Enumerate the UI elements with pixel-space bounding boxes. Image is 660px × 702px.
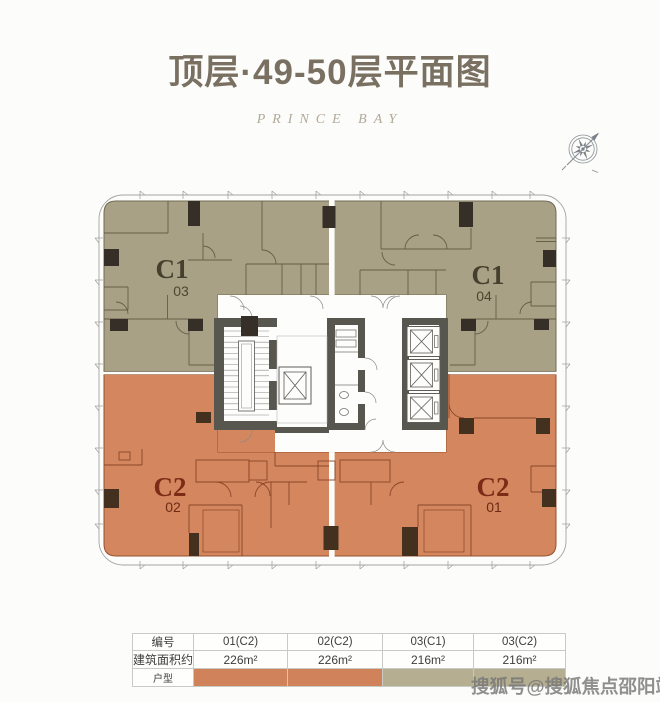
svg-text:01: 01: [486, 499, 502, 515]
svg-text:02: 02: [165, 499, 181, 515]
svg-text:C2: C2: [154, 472, 187, 502]
svg-text:04: 04: [476, 288, 492, 304]
svg-text:C2: C2: [477, 472, 510, 502]
svg-text:C1: C1: [156, 254, 189, 284]
svg-text:C1: C1: [472, 260, 505, 290]
svg-text:03: 03: [173, 283, 189, 299]
